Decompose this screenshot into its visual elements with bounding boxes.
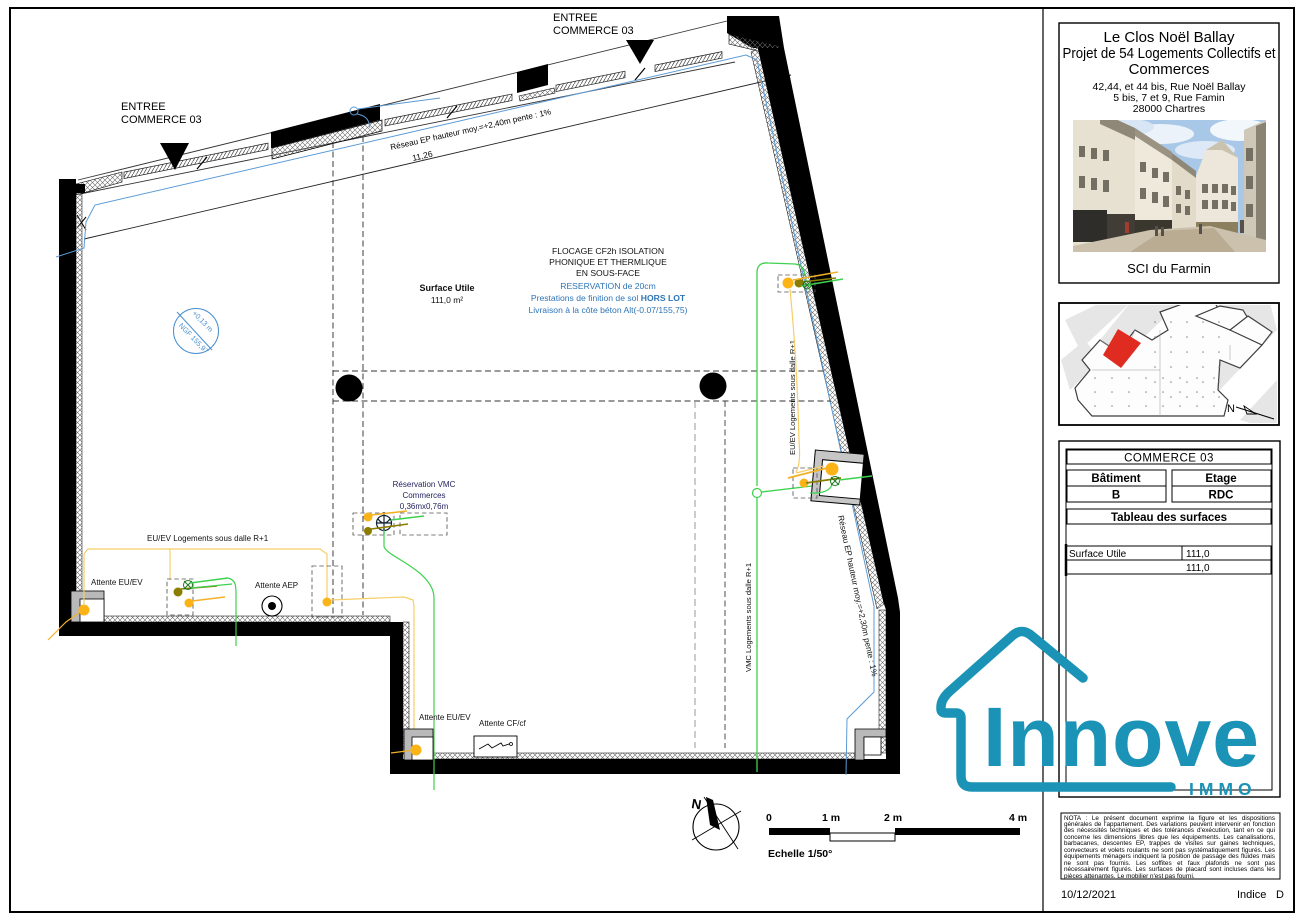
svg-text:B: B — [1112, 490, 1120, 502]
svg-text:EN SOUS-FACE: EN SOUS-FACE — [576, 268, 640, 278]
svg-text:FLOCAGE CF2h ISOLATION: FLOCAGE CF2h ISOLATION — [552, 246, 664, 256]
svg-text:Surface Utile: Surface Utile — [419, 283, 474, 293]
svg-text:COMMERCE 03: COMMERCE 03 — [121, 114, 202, 126]
svg-text:Surface Utile: Surface Utile — [1069, 549, 1127, 560]
svg-text:N: N — [1227, 403, 1235, 415]
svg-text:Attente AEP: Attente AEP — [255, 581, 298, 590]
svg-text:IMMO: IMMO — [1189, 779, 1257, 799]
svg-text:Indice: Indice — [1237, 889, 1266, 901]
svg-text:ENTREE: ENTREE — [121, 101, 166, 113]
svg-text:Réservation VMC: Réservation VMC — [393, 480, 456, 489]
svg-text:D: D — [1276, 889, 1284, 901]
svg-text:Commerces: Commerces — [402, 491, 445, 500]
svg-text:10/12/2021: 10/12/2021 — [1061, 889, 1116, 901]
svg-text:2 m: 2 m — [884, 812, 902, 824]
svg-text:Etage: Etage — [1205, 473, 1236, 485]
svg-text:Bâtiment: Bâtiment — [1091, 473, 1140, 485]
svg-text:Tableau des surfaces: Tableau des surfaces — [1111, 512, 1227, 524]
svg-text:Echelle 1/50°: Echelle 1/50° — [768, 848, 832, 860]
svg-text:4 m: 4 m — [1009, 812, 1027, 824]
svg-text:PHONIQUE ET THERMLIQUE: PHONIQUE ET THERMLIQUE — [549, 257, 667, 267]
svg-text:Le Clos Noël Ballay: Le Clos Noël Ballay — [1104, 29, 1235, 46]
svg-text:Prestations de finition de sol: Prestations de finition de sol HORS LOT — [531, 293, 686, 303]
svg-text:111,0 m²: 111,0 m² — [431, 295, 463, 305]
svg-text:SCI du Farmin: SCI du Farmin — [1127, 261, 1211, 276]
svg-text:Innove: Innove — [983, 690, 1256, 784]
svg-text:1 m: 1 m — [822, 812, 840, 824]
svg-text:Livraison à la côte béton Alt(: Livraison à la côte béton Alt(-0.07/155,… — [528, 305, 687, 315]
svg-text:EU/EV Logements sous dalle R+1: EU/EV Logements sous dalle R+1 — [147, 534, 269, 543]
svg-text:Attente EU/EV: Attente EU/EV — [419, 713, 471, 722]
svg-text:COMMERCE 03: COMMERCE 03 — [553, 25, 634, 37]
svg-text:0: 0 — [766, 812, 772, 824]
svg-text:COMMERCE 03: COMMERCE 03 — [1124, 453, 1214, 465]
svg-text:0,36mx0,76m: 0,36mx0,76m — [400, 502, 449, 511]
svg-text:Attente EU/EV: Attente EU/EV — [91, 578, 143, 587]
svg-text:RESERVATION de 20cm: RESERVATION de 20cm — [560, 281, 656, 291]
svg-text:28000 Chartres: 28000 Chartres — [1133, 103, 1205, 115]
svg-text:VMC Logements sous dalle R+1: VMC Logements sous dalle R+1 — [744, 563, 753, 672]
svg-text:111,0: 111,0 — [1186, 549, 1210, 560]
svg-text:Projet de 54 Logements Collect: Projet de 54 Logements Collectifs et — [1063, 45, 1277, 62]
svg-text:RDC: RDC — [1209, 490, 1234, 502]
svg-text:Attente CF/cf: Attente CF/cf — [479, 719, 526, 728]
svg-text:111,0: 111,0 — [1186, 563, 1210, 574]
svg-text:ENTREE: ENTREE — [553, 12, 598, 24]
svg-text:Commerces: Commerces — [1129, 61, 1210, 78]
